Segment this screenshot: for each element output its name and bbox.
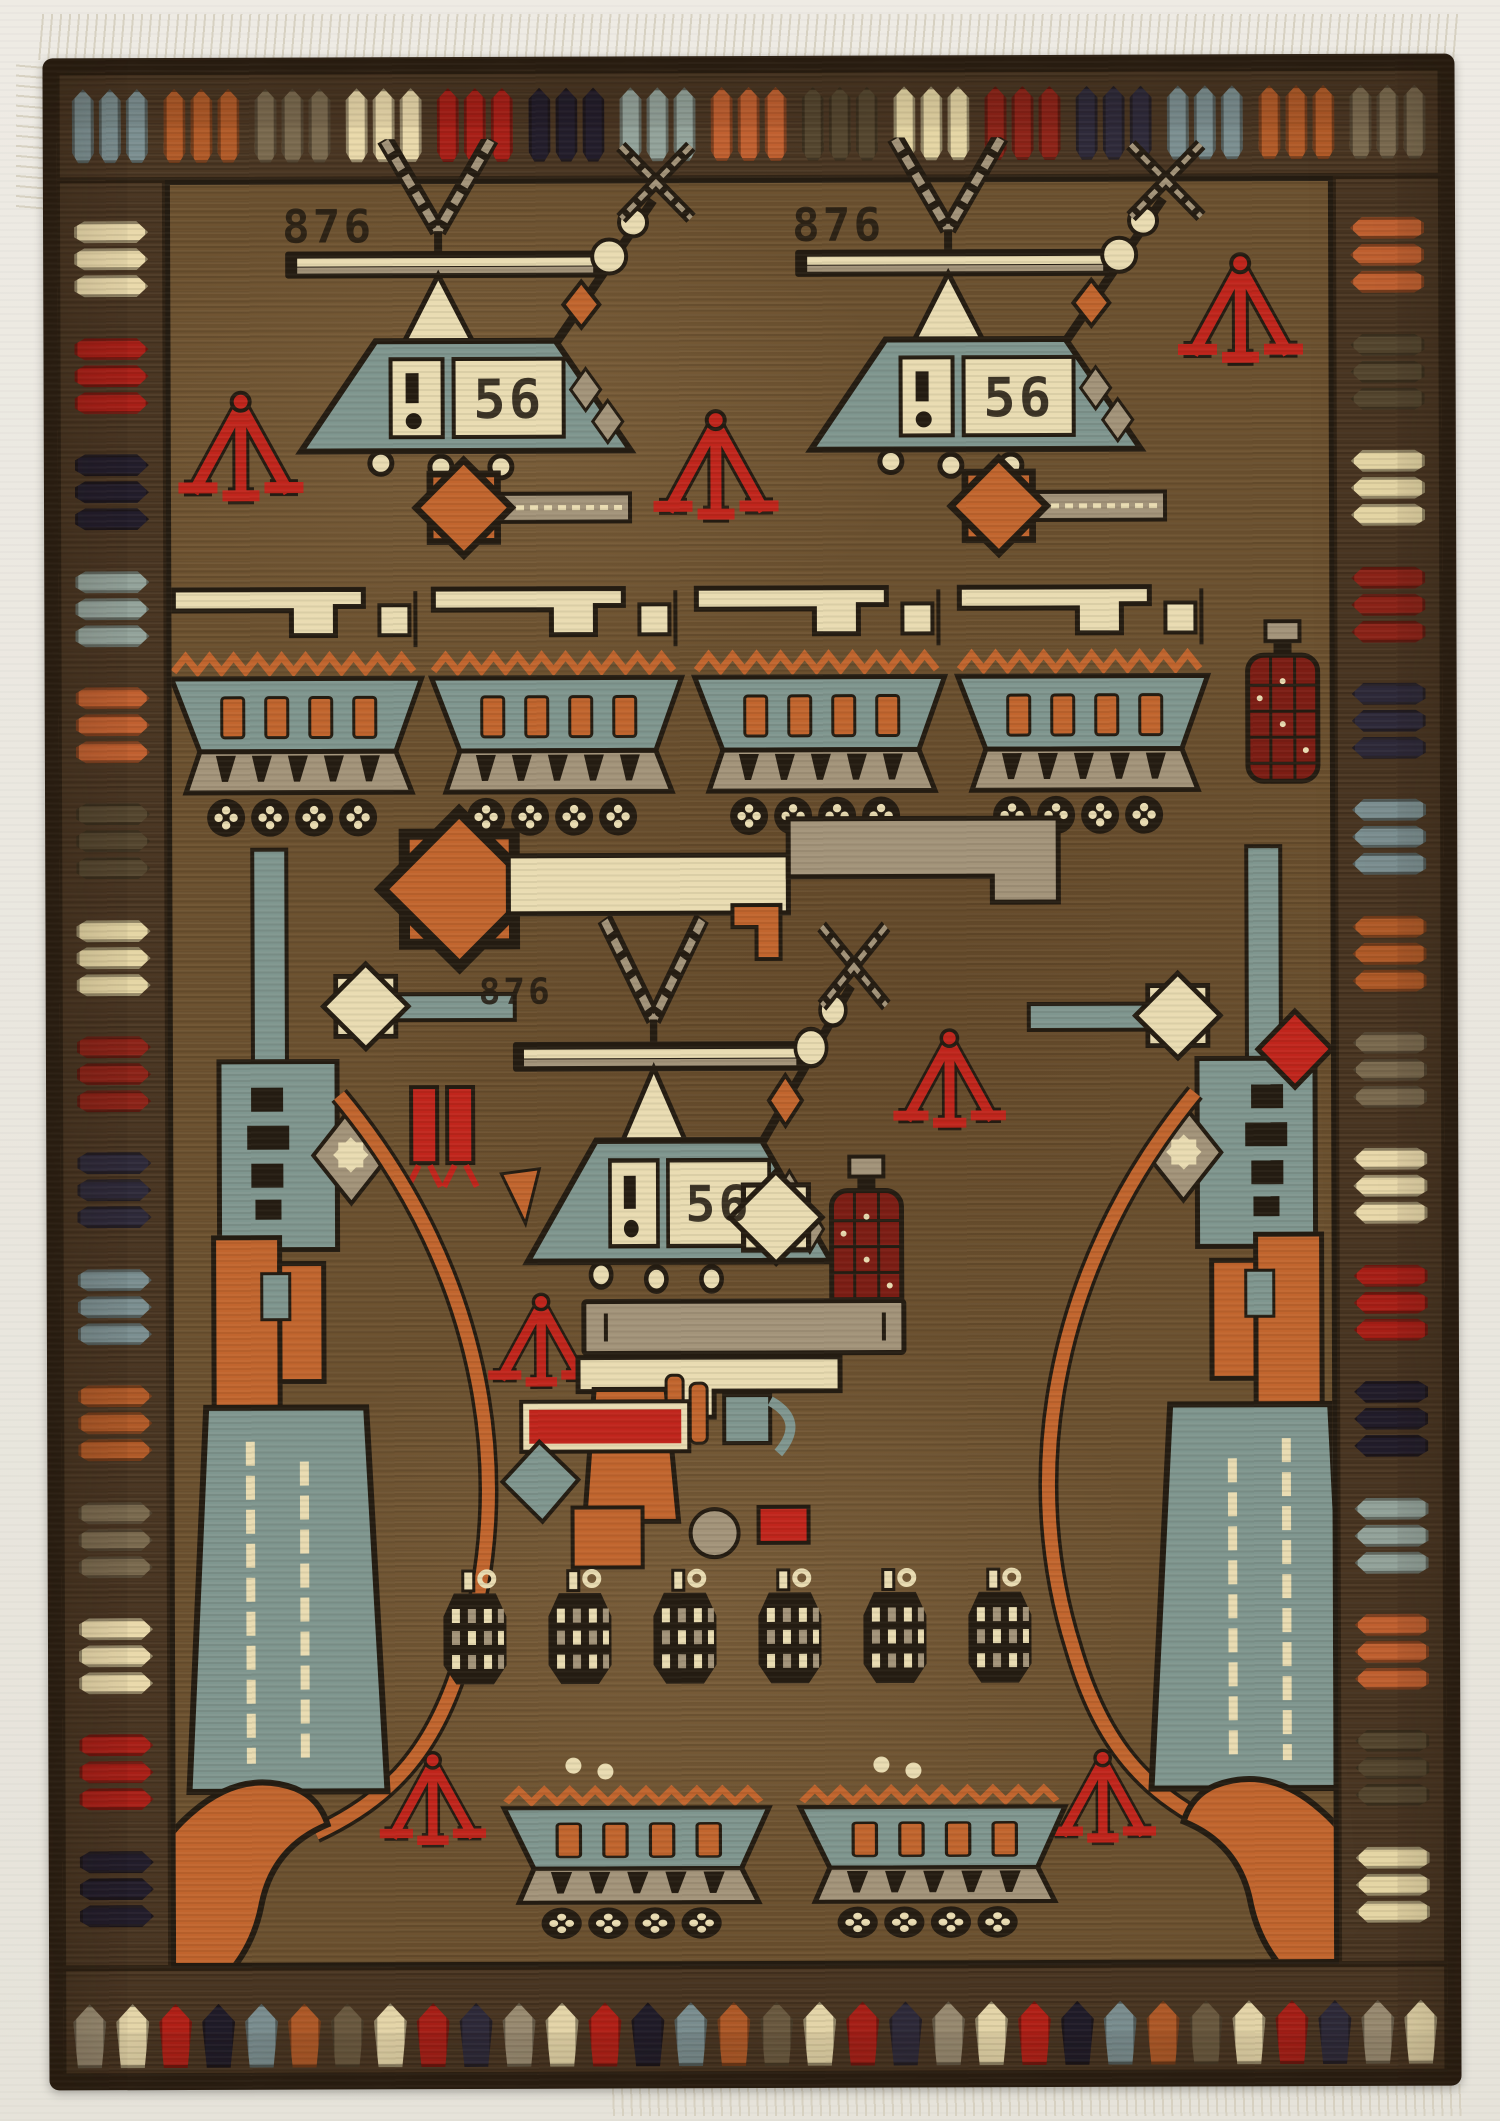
border-tulip bbox=[717, 2002, 750, 2066]
border-tulip bbox=[1232, 2000, 1265, 2064]
border-tulip bbox=[116, 2004, 149, 2068]
border-bullet bbox=[80, 1851, 154, 1873]
border-bullet bbox=[76, 830, 150, 852]
border-tulip bbox=[674, 2002, 707, 2066]
border-bullet bbox=[77, 947, 151, 969]
armored-vehicle-bottom-1 bbox=[504, 1789, 770, 1939]
rocket-motif-middle-right bbox=[1029, 973, 1221, 1059]
inscription-876-top-right: 876 bbox=[792, 198, 884, 252]
border-bullet bbox=[1356, 1900, 1430, 1922]
red-tripod-middle-right bbox=[898, 1030, 1001, 1123]
border-bullet bbox=[76, 803, 150, 825]
border-bullet-group bbox=[1353, 1032, 1427, 1108]
rug-border-bottom bbox=[63, 1964, 1447, 2077]
border-bullet bbox=[1353, 942, 1427, 964]
border-bullet bbox=[1355, 1784, 1429, 1806]
border-bullet bbox=[77, 1152, 151, 1174]
border-bullet-group bbox=[78, 1269, 152, 1345]
border-bullet bbox=[1354, 1435, 1428, 1457]
border-bullet bbox=[1354, 1291, 1428, 1313]
inscription-56-top-left: 56 bbox=[473, 368, 544, 431]
red-tripod-middle-left bbox=[493, 1294, 590, 1382]
border-bullet bbox=[1354, 1408, 1428, 1430]
border-tulip bbox=[760, 2002, 793, 2066]
border-bullet-group bbox=[74, 338, 148, 414]
border-bullet-group bbox=[1354, 1381, 1428, 1457]
rifle-horizontal-motif bbox=[381, 809, 1058, 967]
border-bullet bbox=[1351, 593, 1425, 615]
border-bullet bbox=[1350, 271, 1424, 293]
border-bullet bbox=[1353, 1032, 1427, 1054]
pineapple-grenade-1 bbox=[445, 1571, 505, 1683]
border-bullet bbox=[1354, 1497, 1428, 1519]
border-bullet bbox=[1403, 85, 1425, 159]
border-tulip bbox=[288, 2004, 321, 2068]
border-bullet bbox=[77, 1206, 151, 1228]
border-tulip bbox=[503, 2003, 536, 2067]
border-bullet bbox=[1352, 710, 1426, 732]
border-bullet bbox=[1351, 477, 1425, 499]
border-bullet bbox=[76, 714, 150, 736]
border-bullet bbox=[74, 248, 148, 270]
border-bullet bbox=[1351, 504, 1425, 526]
border-tulip bbox=[1104, 2001, 1137, 2065]
border-bullet bbox=[75, 508, 149, 530]
border-bullet-group bbox=[1352, 799, 1426, 875]
border-tulip bbox=[73, 2004, 106, 2068]
border-bullet-group bbox=[77, 1152, 151, 1228]
border-bullet bbox=[72, 89, 94, 163]
border-bullet bbox=[1353, 1059, 1427, 1081]
border-bullet bbox=[74, 338, 148, 360]
border-bullet-group bbox=[1355, 1614, 1429, 1690]
border-bullet-group bbox=[79, 1734, 153, 1810]
border-bullet bbox=[75, 598, 149, 620]
border-bullet-group bbox=[1351, 450, 1425, 526]
border-bullet bbox=[1352, 683, 1426, 705]
pineapple-grenade-2 bbox=[550, 1570, 610, 1682]
rug-fringe-left bbox=[16, 60, 46, 210]
border-bullet-group bbox=[75, 571, 149, 647]
border-bullet bbox=[1353, 1202, 1427, 1224]
border-bullet bbox=[76, 687, 150, 709]
border-bullet bbox=[79, 1788, 153, 1810]
border-bullet-group bbox=[72, 89, 148, 163]
border-bullet bbox=[80, 1878, 154, 1900]
border-bullet bbox=[1376, 85, 1398, 159]
border-bullet bbox=[1350, 217, 1424, 239]
pineapple-grenade-6 bbox=[970, 1569, 1030, 1681]
border-tulip bbox=[975, 2001, 1008, 2065]
border-bullet bbox=[79, 1556, 153, 1578]
border-bullet bbox=[1351, 387, 1425, 409]
border-bullet bbox=[79, 1761, 153, 1783]
border-tulip bbox=[202, 2004, 235, 2068]
border-bullet bbox=[77, 1179, 151, 1201]
border-bullet bbox=[78, 1269, 152, 1291]
pineapple-grenade-5 bbox=[865, 1569, 925, 1681]
border-bullet-group bbox=[1352, 915, 1426, 991]
rug-fringe-bottom bbox=[610, 2084, 1462, 2116]
border-bullet bbox=[79, 1645, 153, 1667]
border-tulip bbox=[932, 2001, 965, 2065]
border-bullet-group bbox=[1355, 1730, 1429, 1806]
border-bullet-group bbox=[76, 803, 150, 879]
border-bullet bbox=[74, 275, 148, 297]
border-bullet bbox=[75, 454, 149, 476]
cream-speck bbox=[873, 1757, 889, 1773]
cream-speck bbox=[597, 1763, 613, 1779]
border-bullet bbox=[75, 392, 149, 414]
border-bullet-group bbox=[1352, 683, 1426, 759]
border-bullet bbox=[1351, 360, 1425, 382]
border-tulip bbox=[1018, 2001, 1051, 2065]
border-bullet bbox=[1353, 1148, 1427, 1170]
border-tulip bbox=[460, 2003, 493, 2067]
border-bullet-group bbox=[76, 920, 150, 996]
border-bullet bbox=[78, 1412, 152, 1434]
border-bullet bbox=[1353, 969, 1427, 991]
border-tulip bbox=[846, 2002, 879, 2066]
inscription-876-middle: 876 bbox=[479, 972, 553, 1013]
border-bullet-group bbox=[1349, 85, 1425, 159]
red-tripod-top-center bbox=[659, 411, 773, 514]
border-bullet-group bbox=[1356, 1846, 1430, 1922]
border-bullet bbox=[77, 1063, 151, 1085]
border-bullet bbox=[1354, 1318, 1428, 1340]
border-tulip bbox=[374, 2003, 407, 2067]
rug-motifs-canvas: 876 876 876 56 56 56 bbox=[170, 136, 1334, 1963]
corner-leaf-left bbox=[170, 1782, 329, 1963]
border-bullet-group bbox=[1354, 1264, 1428, 1340]
border-tulip bbox=[545, 2003, 578, 2067]
war-rug: 876 876 876 56 56 56 bbox=[42, 54, 1461, 2091]
armored-vehicle-1 bbox=[171, 589, 422, 837]
armored-vehicle-4 bbox=[957, 586, 1208, 834]
pineapple-grenade-3 bbox=[655, 1570, 715, 1682]
border-bullet bbox=[1355, 1614, 1429, 1636]
bottle-grenade-center bbox=[831, 1156, 902, 1316]
border-bullet bbox=[1355, 1641, 1429, 1663]
border-bullet-group bbox=[78, 1502, 152, 1578]
border-bullet bbox=[1353, 1175, 1427, 1197]
border-bullet bbox=[78, 1502, 152, 1524]
rug-field: 876 876 876 56 56 56 bbox=[170, 181, 1334, 1963]
border-tulip bbox=[1147, 2001, 1180, 2065]
corner-leaf-right bbox=[1183, 1779, 1334, 1963]
border-bullet bbox=[78, 1323, 152, 1345]
border-bullet bbox=[1355, 1730, 1429, 1752]
border-bullet bbox=[79, 1734, 153, 1756]
border-bullet bbox=[1351, 620, 1425, 642]
border-bullet bbox=[126, 89, 148, 163]
border-tulip bbox=[159, 2004, 192, 2068]
border-bullet bbox=[1350, 333, 1424, 355]
border-bullet bbox=[75, 365, 149, 387]
border-bullet bbox=[76, 857, 150, 879]
border-bullet bbox=[77, 1090, 151, 1112]
border-tulip bbox=[588, 2002, 621, 2066]
border-bullet bbox=[76, 741, 150, 763]
border-bullet bbox=[1350, 244, 1424, 266]
border-tulip bbox=[803, 2002, 836, 2066]
rug-border-right bbox=[1333, 176, 1447, 1964]
border-tulip bbox=[1361, 2000, 1394, 2064]
border-bullet bbox=[80, 1905, 154, 1927]
border-bullet bbox=[78, 1439, 152, 1461]
cream-speck bbox=[565, 1758, 581, 1774]
red-tripod-top-left bbox=[184, 393, 298, 496]
border-bullet bbox=[77, 974, 151, 996]
border-bullet bbox=[1354, 1381, 1428, 1403]
border-bullet bbox=[99, 89, 121, 163]
border-bullet bbox=[1352, 853, 1426, 875]
rug-fringe-top bbox=[37, 14, 1463, 60]
inscription-876-top-left: 876 bbox=[282, 199, 374, 253]
border-bullet bbox=[78, 1296, 152, 1318]
border-bullet bbox=[78, 1385, 152, 1407]
border-bullet bbox=[79, 1618, 153, 1640]
bottle-grenade-right bbox=[1247, 621, 1318, 781]
border-bullet bbox=[1355, 1757, 1429, 1779]
border-bullet bbox=[1356, 1873, 1430, 1895]
border-bullet-group bbox=[78, 1385, 152, 1461]
border-bullet bbox=[1352, 826, 1426, 848]
inscription-56-middle: 56 bbox=[685, 1175, 751, 1233]
armored-vehicle-3 bbox=[694, 587, 945, 835]
border-tulip bbox=[1275, 2000, 1308, 2064]
border-bullet-group bbox=[75, 454, 149, 530]
border-tulip bbox=[331, 2003, 364, 2067]
border-tulip bbox=[417, 2003, 450, 2067]
border-bullet bbox=[1351, 450, 1425, 472]
border-bullet bbox=[1354, 1264, 1428, 1286]
border-bullet-group bbox=[1350, 217, 1424, 293]
border-bullet bbox=[1355, 1668, 1429, 1690]
border-bullet-group bbox=[74, 221, 148, 297]
border-bullet-group bbox=[77, 1036, 151, 1112]
rug-border-left bbox=[57, 180, 171, 1968]
border-bullet bbox=[1352, 737, 1426, 759]
border-bullet-group bbox=[80, 1851, 154, 1927]
border-bullet bbox=[1352, 799, 1426, 821]
border-bullet bbox=[1351, 566, 1425, 588]
cream-speck bbox=[905, 1762, 921, 1778]
border-bullet bbox=[1352, 915, 1426, 937]
border-bullet-group bbox=[1351, 566, 1425, 642]
border-bullet bbox=[1355, 1524, 1429, 1546]
border-bullet bbox=[77, 1036, 151, 1058]
border-bullet-group bbox=[76, 687, 150, 763]
border-tulip bbox=[1404, 2000, 1437, 2064]
border-bullet-group bbox=[79, 1618, 153, 1694]
rocket-motif-right bbox=[951, 458, 1165, 554]
border-tulip bbox=[1190, 2000, 1223, 2064]
border-bullet bbox=[75, 481, 149, 503]
border-bullet-group bbox=[1353, 1148, 1427, 1224]
border-bullet bbox=[76, 920, 150, 942]
border-tulip bbox=[1061, 2001, 1094, 2065]
pineapple-grenade-4 bbox=[760, 1570, 820, 1682]
border-bullet-group bbox=[1350, 333, 1424, 409]
armored-vehicle-bottom-2 bbox=[800, 1788, 1066, 1938]
border-bullet bbox=[1349, 85, 1371, 159]
border-tulip bbox=[245, 2004, 278, 2068]
red-tripod-top-right bbox=[1183, 254, 1297, 357]
border-bullet-group bbox=[1354, 1497, 1428, 1573]
armored-vehicle-2 bbox=[431, 588, 682, 836]
inscription-56-top-right: 56 bbox=[983, 366, 1054, 429]
border-bullet bbox=[79, 1672, 153, 1694]
photo-backdrop: 876 876 876 56 56 56 bbox=[0, 0, 1500, 2121]
border-bullet bbox=[1353, 1086, 1427, 1108]
border-bullet bbox=[79, 1529, 153, 1551]
border-bullet bbox=[1356, 1846, 1430, 1868]
border-bullet bbox=[74, 221, 148, 243]
border-tulip bbox=[631, 2002, 664, 2066]
border-bullet bbox=[75, 571, 149, 593]
border-tulip bbox=[1318, 2000, 1351, 2064]
rocket-motif-left bbox=[416, 459, 630, 555]
border-tulip bbox=[889, 2001, 922, 2065]
border-bullet bbox=[1355, 1551, 1429, 1573]
border-bullet bbox=[75, 625, 149, 647]
